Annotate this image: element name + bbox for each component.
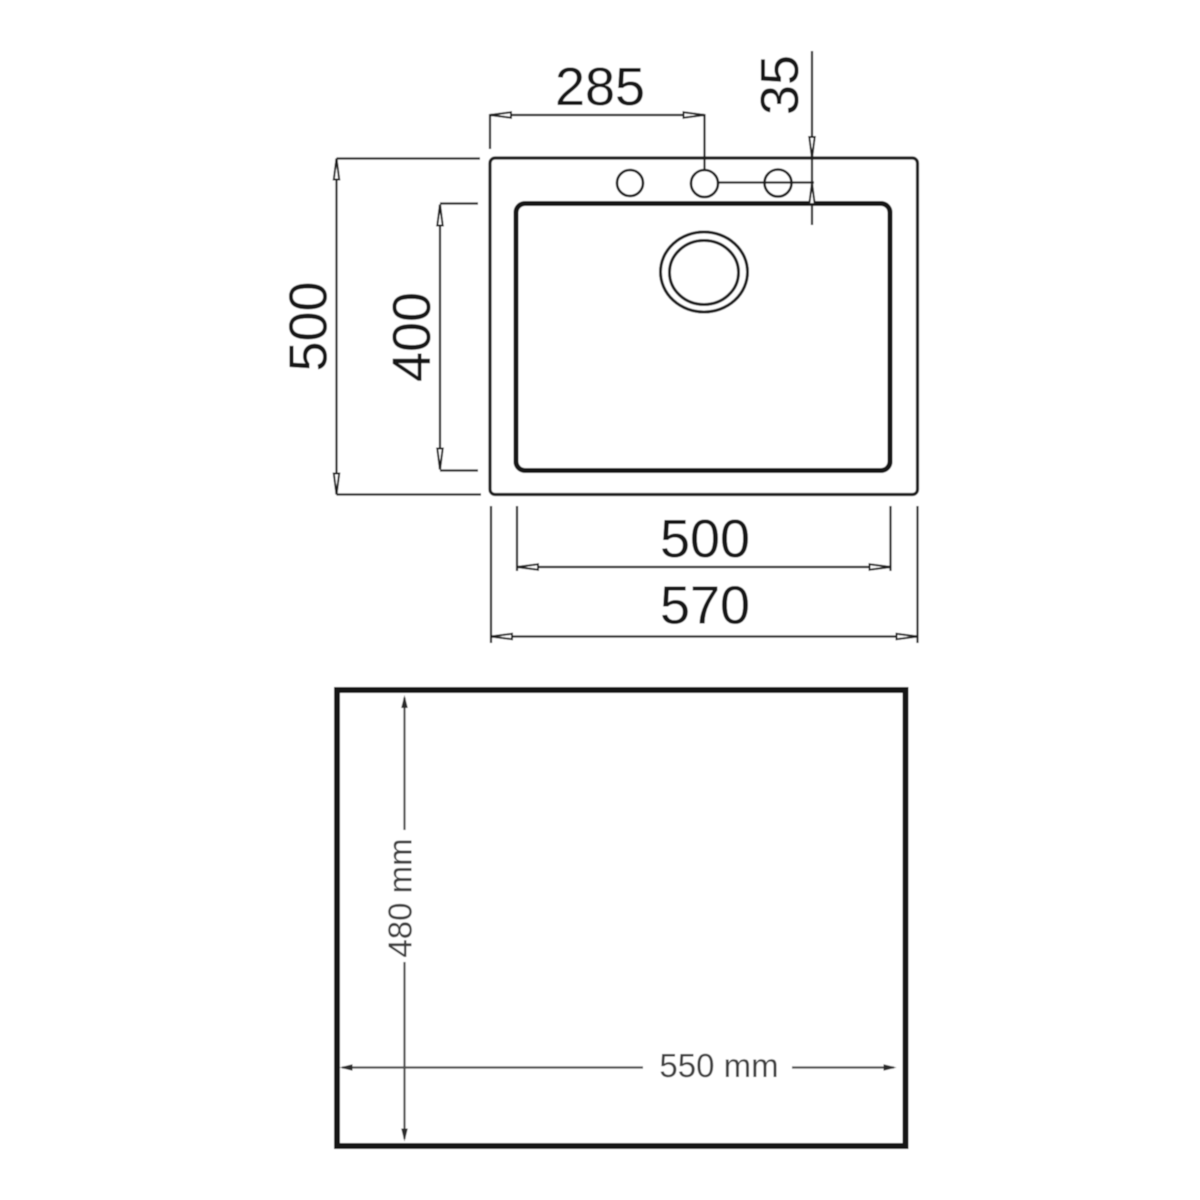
svg-text:285: 285 xyxy=(555,57,645,117)
svg-text:35: 35 xyxy=(750,55,810,115)
svg-text:500: 500 xyxy=(660,509,750,569)
svg-text:400: 400 xyxy=(382,292,442,382)
svg-text:570: 570 xyxy=(660,576,750,636)
svg-text:500: 500 xyxy=(279,281,339,371)
svg-text:550 mm: 550 mm xyxy=(659,1047,778,1084)
svg-text:480 mm: 480 mm xyxy=(382,838,419,957)
